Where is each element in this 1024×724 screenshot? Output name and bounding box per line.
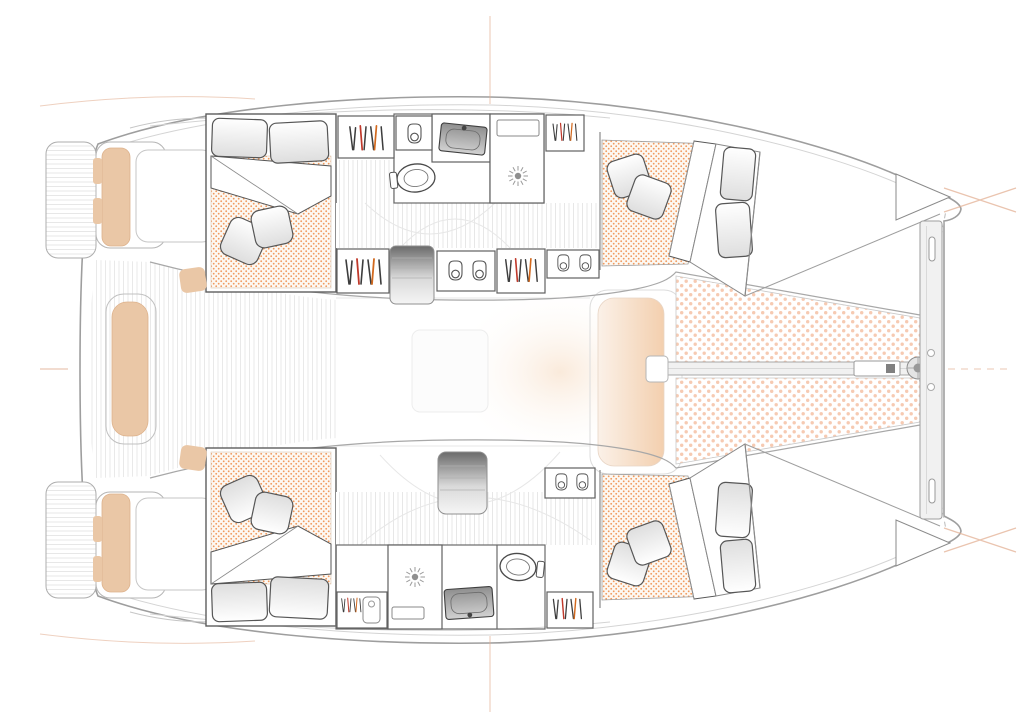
crossbeam-bolt xyxy=(928,350,935,357)
wardrobe xyxy=(547,592,593,628)
wardrobe xyxy=(497,249,545,293)
crossbeam-bolt xyxy=(928,384,935,391)
corner-cushion xyxy=(178,266,207,293)
corridor-floor xyxy=(336,203,598,248)
hanging-locker-hook-icon xyxy=(556,474,567,490)
berth-pillow xyxy=(715,202,753,258)
toilet-cistern xyxy=(536,561,545,578)
swim-platform xyxy=(46,142,96,258)
transom-cushion-tab xyxy=(93,198,102,224)
shower-shelf xyxy=(497,120,539,136)
port-hull-midship xyxy=(336,114,599,304)
corner-cushion xyxy=(178,444,207,471)
companionway-stairs xyxy=(438,452,487,514)
companionway-stairs xyxy=(390,246,434,304)
transom-bench-cushion xyxy=(102,148,130,246)
mast-step xyxy=(646,356,668,382)
throw-pillow xyxy=(249,204,294,249)
hanging-locker-hook-icon xyxy=(408,124,421,143)
hanging-locker-hook-icon xyxy=(473,261,486,280)
berth-pillow xyxy=(720,147,756,202)
bowsprit-cleat xyxy=(886,364,895,373)
saloon-table-ghost xyxy=(412,330,488,412)
hanging-locker-hook-icon xyxy=(558,255,569,271)
berth-pillow xyxy=(211,118,267,158)
transom-cushion-tab xyxy=(93,158,102,184)
corridor-floor xyxy=(338,160,394,203)
wardrobe xyxy=(546,115,584,151)
deck-plan-canvas xyxy=(0,0,1024,724)
toilet-cistern xyxy=(389,172,398,189)
aft-cabin xyxy=(206,114,336,292)
bow-registration-cross xyxy=(944,188,1016,212)
berth-pillow xyxy=(269,121,329,164)
helm-station-frame xyxy=(136,150,214,242)
wardrobe xyxy=(337,249,389,293)
forward-crossbeam xyxy=(920,221,942,519)
wardrobe xyxy=(338,116,394,158)
sink-basin-icon xyxy=(444,586,494,619)
hanging-locker-hook-icon xyxy=(577,474,588,490)
shower-shelf xyxy=(392,607,424,619)
crossbeam-slot xyxy=(929,479,935,503)
hanging-locker-hook-icon xyxy=(449,261,462,280)
sink-basin-icon xyxy=(439,123,488,156)
crossbeam-slot xyxy=(929,237,935,261)
bench-cushion xyxy=(112,302,148,436)
deck-plan-svg xyxy=(0,0,1024,724)
hanging-locker-hook-icon xyxy=(580,255,591,271)
stern-registration-arc xyxy=(40,97,255,106)
